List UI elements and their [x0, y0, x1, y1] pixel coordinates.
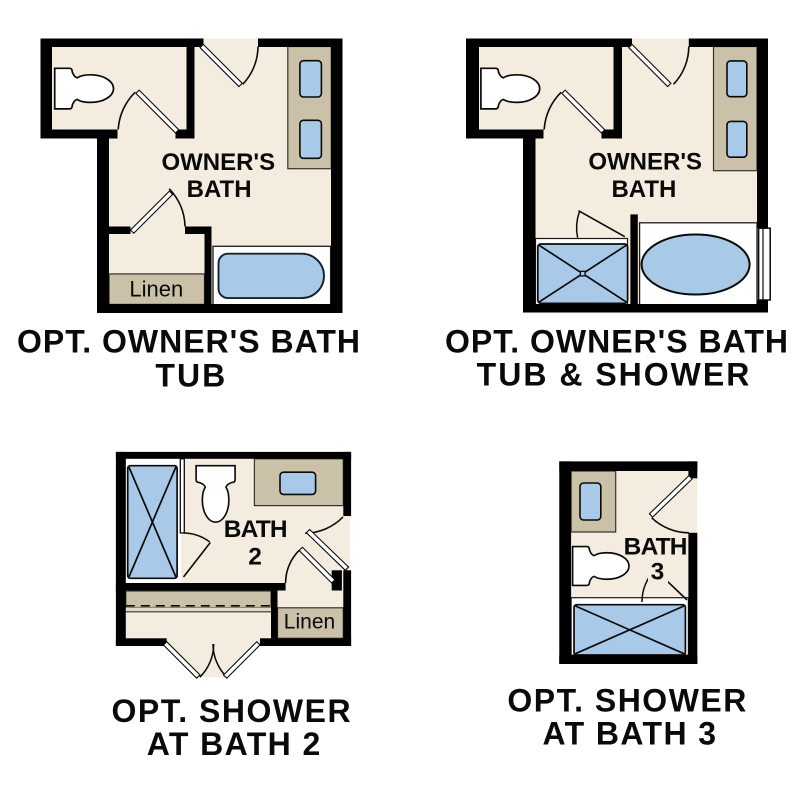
svg-text:OPT. OWNER'S BATH: OPT. OWNER'S BATH: [17, 324, 361, 360]
svg-text:Linen: Linen: [284, 611, 335, 634]
svg-text:3: 3: [651, 558, 665, 585]
svg-text:OPT. OWNER'S BATH: OPT. OWNER'S BATH: [445, 324, 789, 360]
svg-text:BATH: BATH: [187, 176, 252, 203]
svg-text:BATH: BATH: [224, 516, 287, 543]
svg-text:TUB: TUB: [155, 358, 227, 394]
svg-text:AT BATH 2: AT BATH 2: [147, 726, 322, 762]
svg-text:OWNER'S: OWNER'S: [588, 149, 702, 176]
svg-text:OWNER'S: OWNER'S: [161, 149, 275, 176]
svg-text:BATH: BATH: [611, 176, 676, 203]
svg-text:OPT. SHOWER: OPT. SHOWER: [112, 693, 353, 729]
svg-text:OPT. SHOWER: OPT. SHOWER: [507, 683, 748, 719]
svg-text:Linen: Linen: [129, 277, 183, 302]
svg-text:BATH: BATH: [624, 533, 687, 560]
svg-text:2: 2: [248, 544, 262, 571]
svg-text:TUB & SHOWER: TUB & SHOWER: [477, 357, 752, 393]
svg-text:AT BATH 3: AT BATH 3: [543, 715, 718, 751]
